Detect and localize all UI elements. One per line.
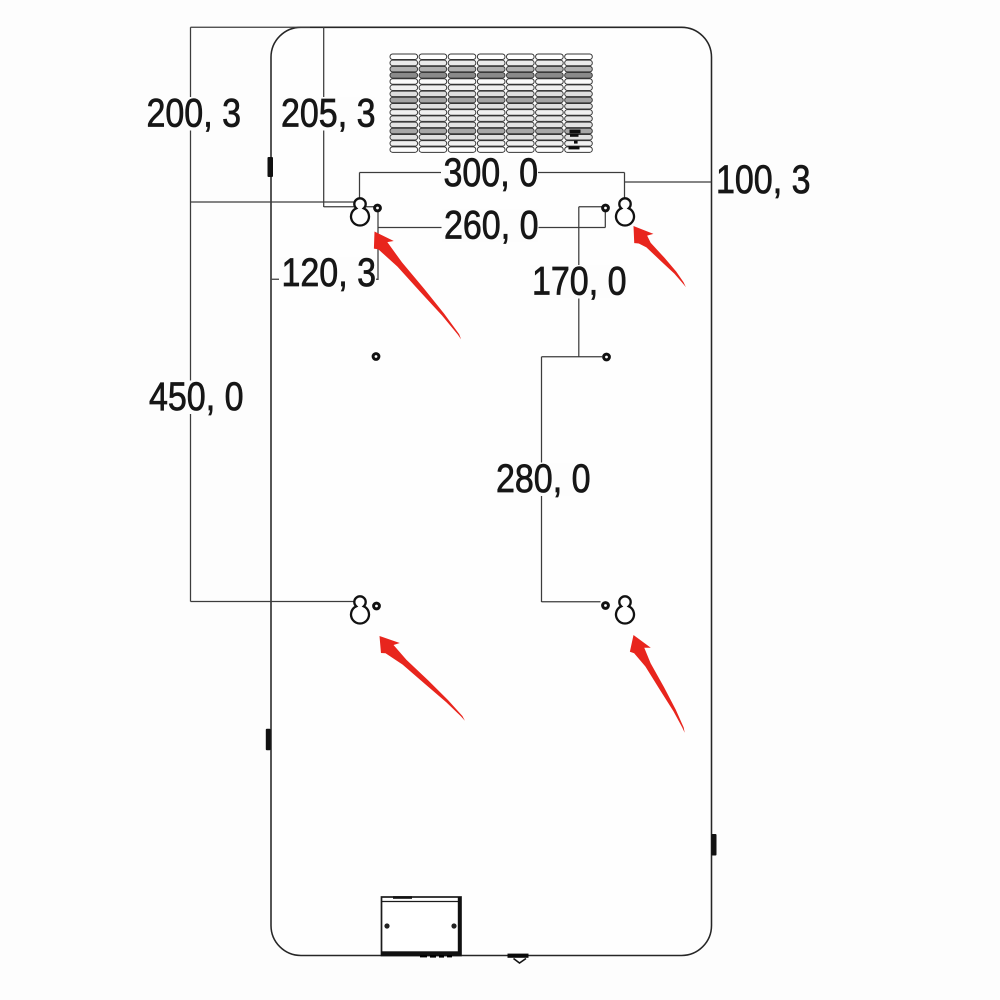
- svg-text:300, 0: 300, 0: [444, 149, 539, 194]
- svg-text:280, 0: 280, 0: [496, 455, 591, 500]
- svg-text:120, 3: 120, 3: [282, 249, 377, 294]
- svg-text:205, 3: 205, 3: [281, 90, 376, 135]
- svg-text:100, 3: 100, 3: [716, 156, 811, 201]
- svg-text:200, 3: 200, 3: [147, 90, 242, 135]
- svg-text:450, 0: 450, 0: [149, 373, 244, 418]
- svg-text:260, 0: 260, 0: [444, 202, 539, 247]
- svg-text:170, 0: 170, 0: [532, 258, 627, 303]
